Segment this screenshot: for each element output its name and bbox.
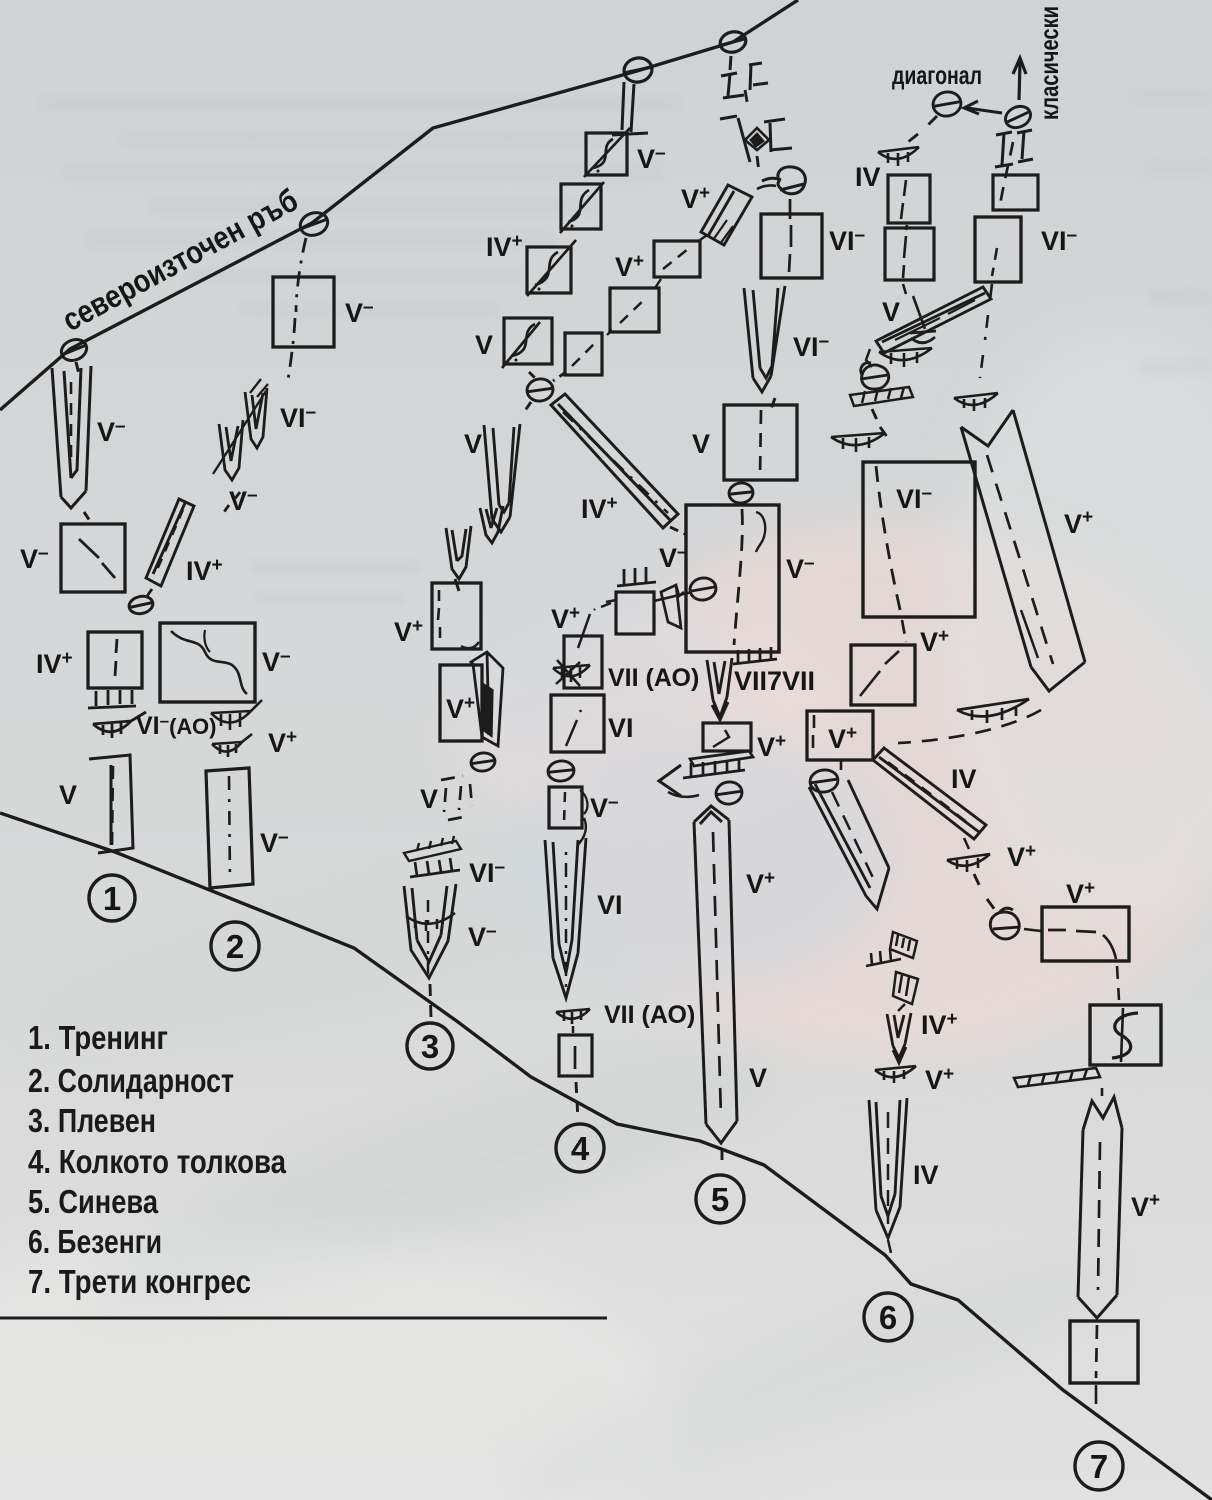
svg-text:V: V <box>749 1063 767 1093</box>
svg-text:V: V <box>882 297 900 327</box>
svg-text:V: V <box>692 429 710 459</box>
svg-text:VI: VI <box>608 713 634 743</box>
svg-text:3: 3 <box>421 1028 439 1065</box>
svg-text:V: V <box>475 330 493 360</box>
svg-text:IV: IV <box>913 1160 939 1190</box>
svg-text:VI–(АО): VI–(АО) <box>136 711 216 740</box>
svg-text:V: V <box>420 784 438 814</box>
svg-text:7: 7 <box>1090 1448 1108 1485</box>
svg-text:V: V <box>59 780 77 810</box>
svg-text:4. Колкото толкова: 4. Колкото толкова <box>28 1143 287 1180</box>
svg-text:класически: класически <box>1034 6 1064 120</box>
svg-text:4: 4 <box>571 1130 590 1167</box>
svg-text:2. Солидарност: 2. Солидарност <box>28 1062 234 1099</box>
svg-text:6: 6 <box>879 1299 897 1336</box>
svg-text:3. Плевен: 3. Плевен <box>28 1102 156 1139</box>
svg-text:V: V <box>464 429 482 459</box>
svg-text:1: 1 <box>103 880 121 917</box>
svg-text:1. Тренинг: 1. Тренинг <box>28 1019 168 1056</box>
svg-text:VII (АО): VII (АО) <box>604 1001 695 1029</box>
svg-text:5: 5 <box>711 1181 729 1218</box>
svg-text:6. Безенги: 6. Безенги <box>28 1223 162 1260</box>
svg-text:IV: IV <box>951 764 977 794</box>
svg-text:IV: IV <box>855 162 881 192</box>
svg-text:VII7VII: VII7VII <box>734 666 815 696</box>
svg-text:диагонал: диагонал <box>892 60 982 90</box>
svg-text:5. Синева: 5. Синева <box>28 1183 159 1220</box>
svg-text:2: 2 <box>226 928 244 965</box>
svg-text:7. Трети конгрес: 7. Трети конгрес <box>28 1263 251 1300</box>
svg-text:VII (АО): VII (АО) <box>608 664 699 692</box>
svg-text:VI: VI <box>597 890 623 920</box>
